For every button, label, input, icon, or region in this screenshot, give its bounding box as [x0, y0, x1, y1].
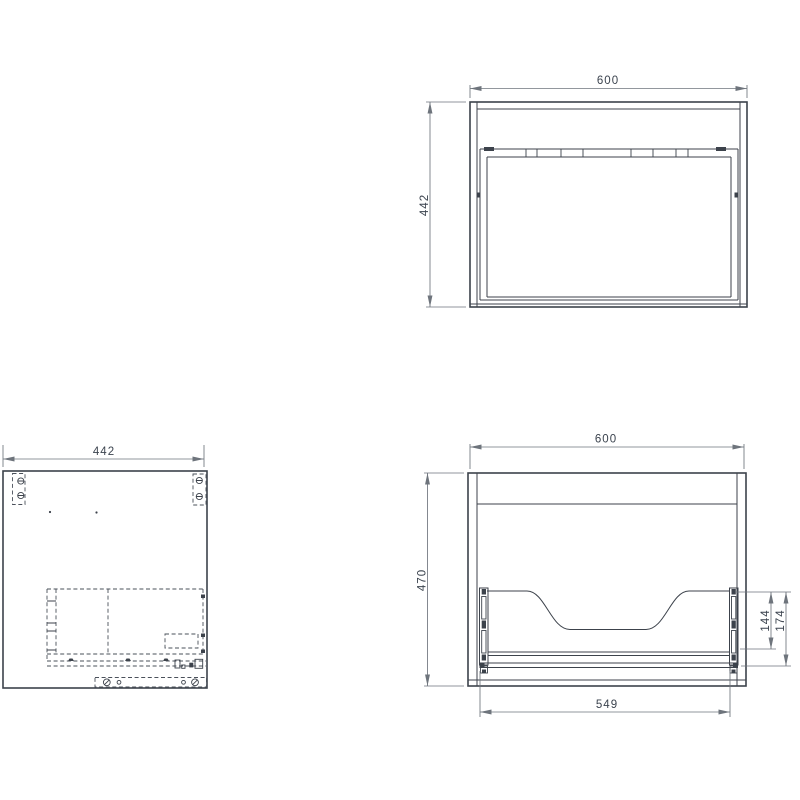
small-hole [117, 680, 121, 684]
back-width-label: 600 [595, 434, 617, 446]
slide-slot [482, 631, 486, 654]
corner-bracket-right [716, 147, 726, 151]
drawer-width-label: 549 [596, 699, 618, 711]
drawer-bottom-edge [488, 652, 730, 656]
bottom-fixing-strip [95, 678, 207, 688]
slide-cap [482, 589, 486, 595]
screw-slot [104, 680, 109, 685]
slide-mark [201, 634, 205, 638]
back-panel-lines [468, 473, 746, 686]
slide-cap [482, 655, 486, 661]
back-width-dimension: 600 [470, 434, 744, 470]
slide-cap [732, 589, 736, 595]
pin-hole-dot [95, 511, 97, 513]
hidden-fitting-box [165, 634, 198, 648]
extension-lines [426, 102, 466, 307]
rail-end-cap-left [480, 663, 485, 668]
side-width-dimension: 442 [3, 445, 204, 467]
drawer-back-height-dimension: 144 174 [736, 592, 791, 666]
side-outer-box [3, 471, 207, 688]
back-view: 600 470 144 174 549 [417, 434, 792, 718]
bracket-outline [193, 474, 206, 505]
hidden-drawer-outline [47, 589, 206, 668]
fitting-part [189, 663, 193, 668]
screw-slot [193, 680, 198, 685]
technical-drawing: 600 442 [0, 0, 800, 800]
corner-bracket-left [484, 147, 494, 151]
drawer-box-hidden-lines [47, 589, 203, 661]
back-outer-box [468, 473, 746, 686]
pin-hole-dot [49, 511, 51, 513]
slide-cap [482, 621, 486, 629]
drawer-slide-left [480, 588, 489, 673]
side-cam-left [477, 193, 480, 198]
wall-bracket-right [193, 474, 206, 505]
slide-foot-mark [482, 670, 486, 674]
drawer-back-height-label: 144 [760, 609, 772, 631]
drawer-back-total-label: 174 [775, 609, 787, 631]
slide-cap [732, 655, 736, 661]
slide-cap [732, 621, 736, 629]
bottom-rail-edge [480, 663, 739, 668]
slide-ticks [47, 601, 56, 650]
front-view: 600 442 [419, 75, 747, 307]
top-rail-joint-ticks [526, 149, 688, 157]
front-width-label: 600 [597, 75, 619, 87]
small-hole [182, 680, 186, 684]
opening-frame-lines [480, 149, 738, 300]
extension-lines [470, 444, 744, 469]
extension-lines [424, 473, 464, 686]
slide-mark [201, 650, 205, 654]
back-height-label: 470 [417, 569, 429, 591]
front-panel-lines [470, 102, 747, 307]
slide-slot [732, 597, 736, 620]
slide-mark [201, 595, 205, 599]
front-height-dimension: 442 [419, 102, 466, 307]
front-outer-box [470, 102, 747, 307]
side-view: 442 [3, 445, 207, 688]
side-width-label: 442 [93, 446, 115, 458]
slide-slot [732, 631, 736, 654]
fitting-part [182, 665, 185, 668]
slide-foot-mark [732, 670, 736, 674]
front-height-label: 442 [419, 194, 431, 216]
drawing-canvas: 600 442 [0, 0, 800, 800]
front-width-dimension: 600 [470, 75, 747, 98]
slide-slot [482, 597, 486, 620]
drawer-width-dimension: 549 [480, 671, 730, 717]
back-height-dimension: 470 [417, 473, 465, 686]
drawer-back-cutout [487, 591, 730, 630]
wall-bracket-left [13, 474, 26, 505]
side-cam-right [735, 193, 738, 198]
front-drawer-opening [477, 147, 739, 300]
strip-outline [95, 678, 207, 688]
rail-end-cap-right [733, 663, 738, 668]
